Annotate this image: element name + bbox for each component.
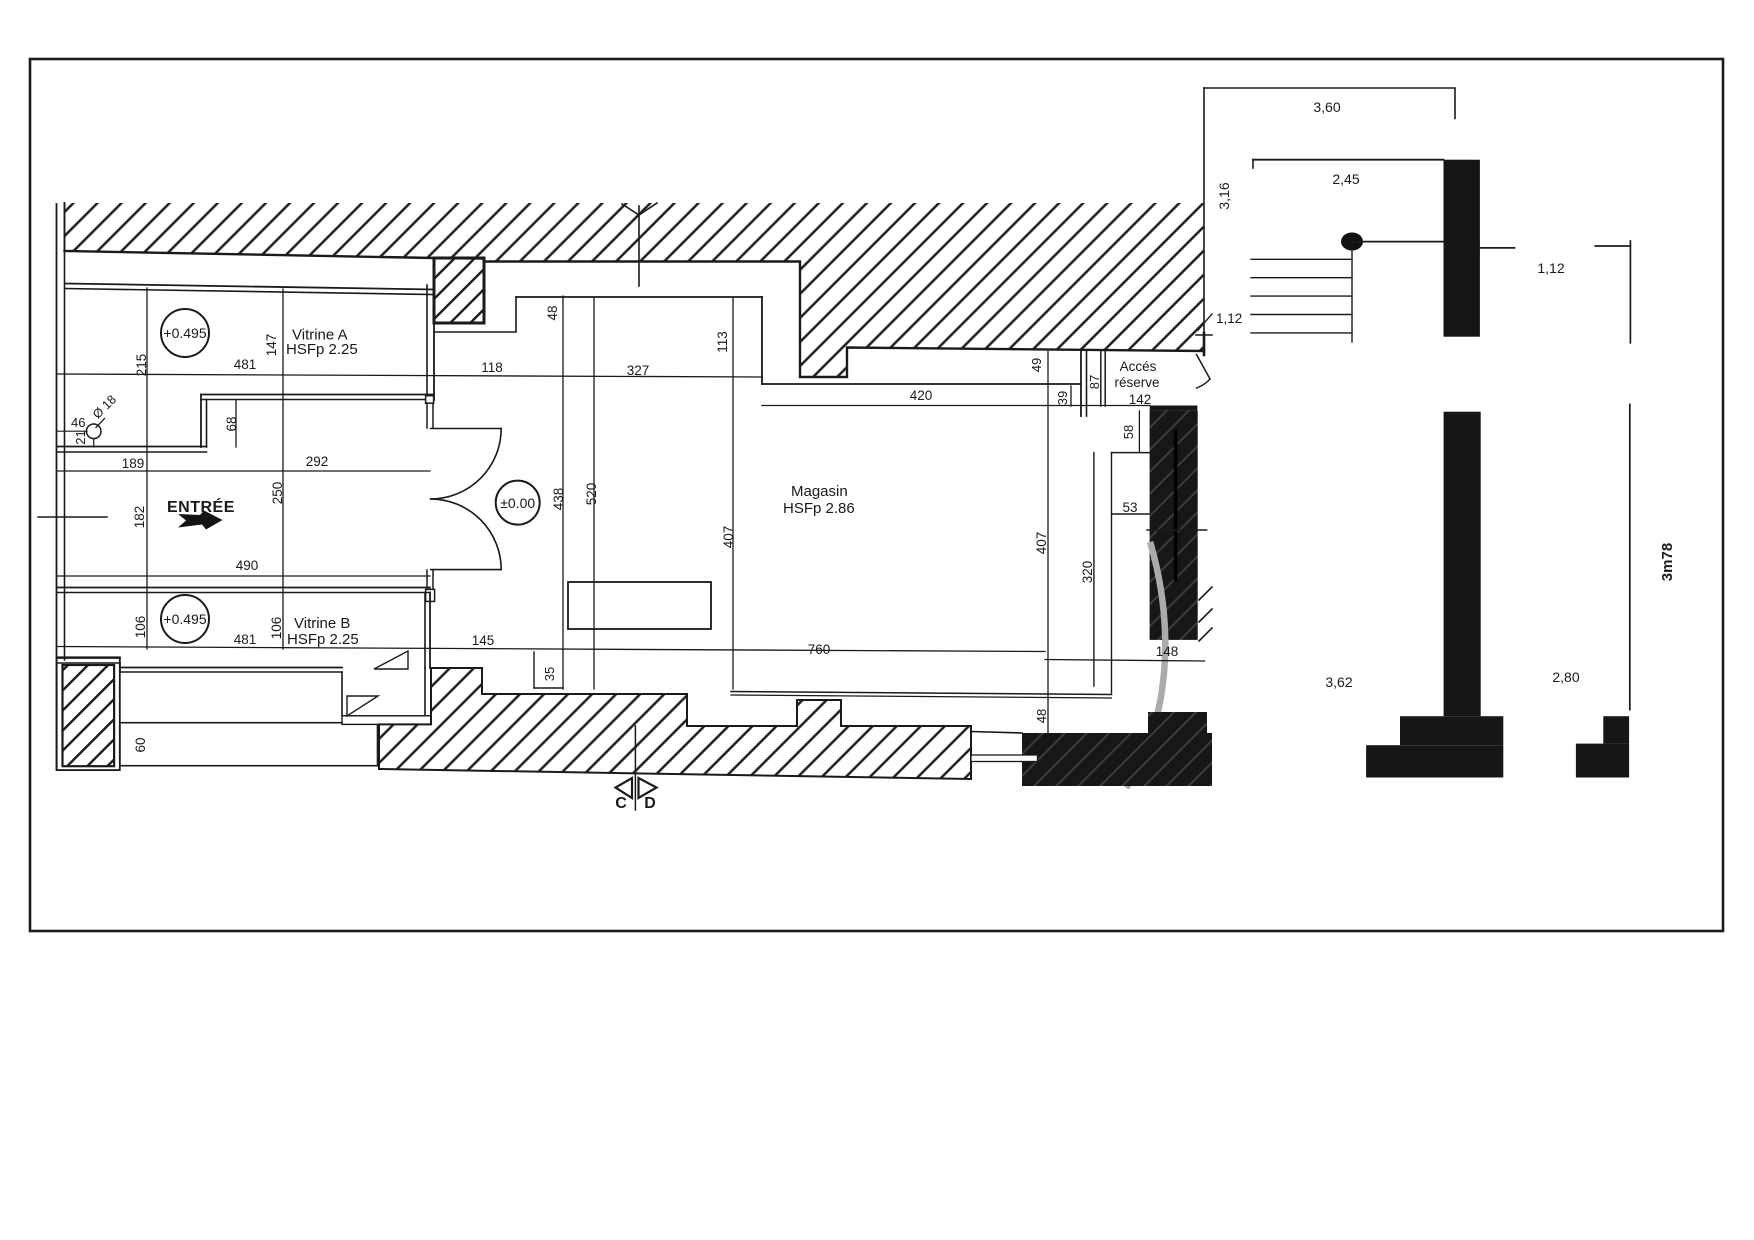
svg-text:407: 407 [1034, 532, 1049, 555]
svg-text:±0.00: ±0.00 [500, 495, 535, 511]
svg-text:113: 113 [715, 331, 730, 353]
svg-text:2,45: 2,45 [1332, 171, 1359, 187]
svg-text:87: 87 [1087, 375, 1102, 389]
svg-text:35: 35 [542, 667, 557, 681]
svg-text:147: 147 [264, 334, 279, 357]
svg-text:292: 292 [306, 454, 329, 469]
svg-text:3,62: 3,62 [1325, 674, 1352, 690]
svg-text:182: 182 [132, 506, 147, 529]
svg-text:148: 148 [1156, 644, 1179, 659]
svg-text:ENTRÉE: ENTRÉE [167, 497, 235, 516]
svg-text:106: 106 [133, 616, 148, 639]
svg-text:320: 320 [1080, 561, 1095, 584]
svg-text:Accés: Accés [1120, 359, 1157, 374]
svg-text:3,16: 3,16 [1216, 182, 1232, 209]
svg-text:49: 49 [1029, 358, 1044, 372]
svg-text:C: C [615, 795, 627, 812]
svg-text:+0.495: +0.495 [163, 325, 206, 341]
svg-text:145: 145 [472, 633, 495, 648]
svg-text:D: D [644, 795, 656, 812]
svg-text:481: 481 [234, 357, 257, 372]
svg-text:250: 250 [270, 482, 285, 505]
svg-text:189: 189 [122, 456, 145, 471]
svg-text:407: 407 [721, 526, 736, 549]
svg-text:3m78: 3m78 [1659, 543, 1676, 581]
svg-text:2,80: 2,80 [1552, 669, 1579, 685]
svg-text:3,60: 3,60 [1313, 99, 1340, 115]
svg-text:1,12: 1,12 [1216, 311, 1242, 326]
svg-text:58: 58 [1121, 425, 1136, 439]
svg-text:46: 46 [71, 415, 85, 430]
svg-text:481: 481 [234, 632, 257, 647]
svg-text:48: 48 [1034, 709, 1049, 723]
svg-text:Magasin: Magasin [791, 483, 848, 500]
svg-text:327: 327 [627, 363, 650, 378]
svg-text:438: 438 [551, 488, 566, 511]
svg-text:760: 760 [808, 642, 831, 657]
svg-text:490: 490 [236, 558, 259, 573]
svg-text:48: 48 [545, 305, 560, 320]
svg-text:HSFp 2.25: HSFp 2.25 [287, 631, 359, 648]
svg-text:HSFp 2.86: HSFp 2.86 [783, 500, 855, 517]
svg-text:106: 106 [269, 617, 284, 640]
svg-text:420: 420 [910, 388, 933, 403]
svg-text:39: 39 [1055, 391, 1070, 405]
svg-text:réserve: réserve [1114, 375, 1159, 390]
svg-text:118: 118 [481, 360, 503, 375]
svg-text:+0.495: +0.495 [163, 611, 206, 627]
svg-text:215: 215 [134, 354, 149, 377]
svg-text:HSFp 2.25: HSFp 2.25 [286, 341, 358, 358]
svg-text:Vitrine B: Vitrine B [294, 615, 350, 632]
svg-text:1,12: 1,12 [1537, 260, 1564, 276]
svg-text:53: 53 [1122, 500, 1137, 515]
svg-text:21: 21 [73, 430, 88, 444]
svg-text:142: 142 [1129, 392, 1152, 407]
svg-text:520: 520 [584, 483, 599, 506]
svg-text:68: 68 [224, 416, 239, 431]
svg-text:60: 60 [133, 737, 148, 752]
